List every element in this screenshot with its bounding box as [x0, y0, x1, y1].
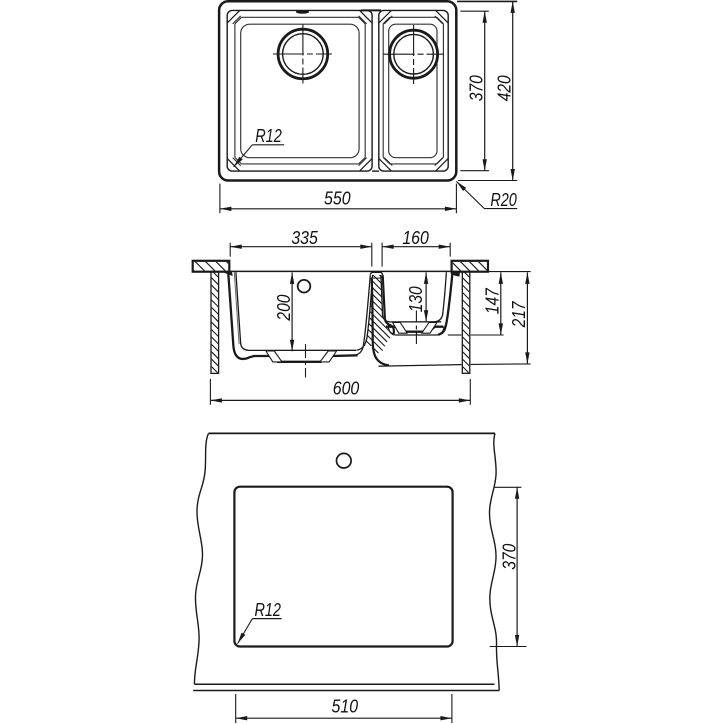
svg-text:370: 370 [499, 543, 520, 570]
svg-text:510: 510 [332, 696, 359, 717]
svg-text:R12: R12 [254, 599, 281, 620]
svg-text:130: 130 [405, 286, 426, 313]
svg-text:147: 147 [482, 288, 503, 315]
svg-text:R12: R12 [255, 125, 282, 146]
svg-text:217: 217 [508, 301, 529, 328]
svg-text:R20: R20 [490, 189, 517, 210]
svg-text:160: 160 [402, 227, 429, 248]
svg-text:335: 335 [291, 227, 318, 248]
svg-text:370: 370 [466, 75, 487, 102]
svg-text:600: 600 [333, 378, 360, 399]
svg-text:420: 420 [494, 75, 515, 102]
svg-text:200: 200 [273, 294, 294, 321]
svg-text:550: 550 [324, 188, 351, 209]
